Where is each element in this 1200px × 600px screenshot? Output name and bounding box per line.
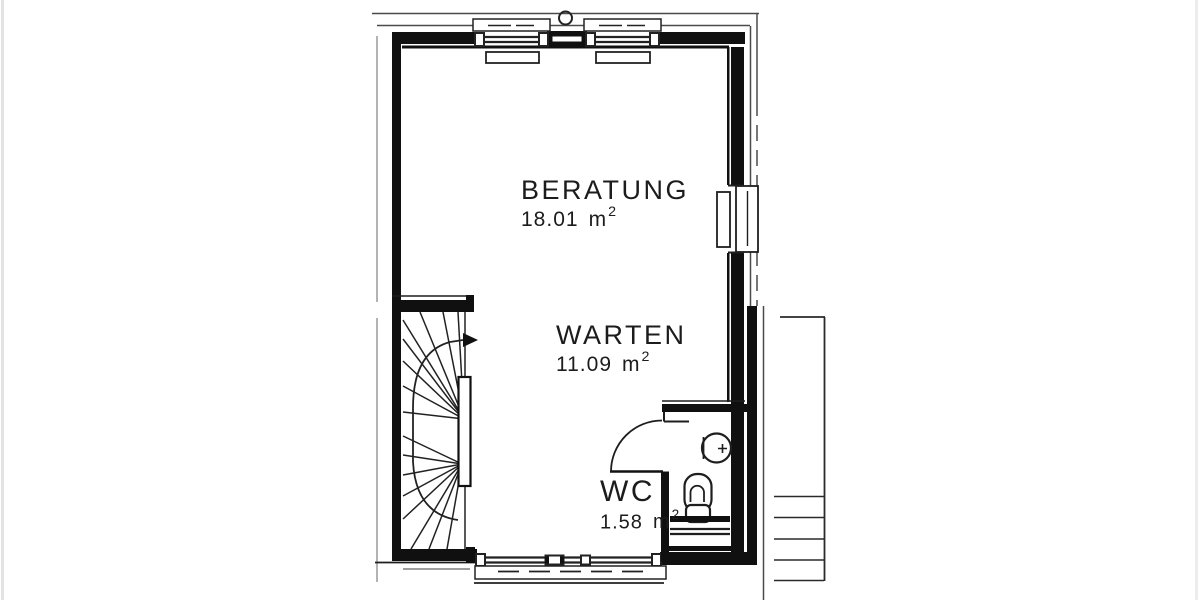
exterior-stairs-icon — [774, 317, 825, 581]
exterior-stairs-treads — [774, 497, 824, 581]
stair-run-arrow-icon — [463, 333, 478, 347]
window-icon — [485, 558, 652, 563]
entrance-door-inner-leaf — [717, 192, 730, 247]
floor-plan-page: BERATUNG 18.01m2 WARTEN 11.09m2 WC 1.58m… — [0, 0, 1200, 600]
wall-top-inner-face — [402, 46, 729, 49]
washbasin-icon — [702, 434, 731, 463]
wall-bottom-left-segment — [392, 549, 477, 561]
radiator-icon — [486, 52, 539, 63]
mullion-block-right — [560, 557, 564, 564]
room-area: 1.58m2 — [600, 510, 679, 534]
window-icon — [584, 19, 661, 63]
scan-edge-left — [1, 0, 4, 600]
window-2-jamb-left — [586, 33, 595, 46]
window-1-frame — [484, 37, 540, 42]
wall-right-inner-face-upper — [727, 47, 730, 185]
window-2-frame — [595, 37, 651, 42]
wall-bottom-right-segment — [660, 552, 754, 565]
window-2-jamb-right — [650, 33, 659, 46]
window-1-jamb-left — [475, 33, 484, 46]
wall-top-right-segment — [658, 32, 745, 44]
entrance-door-icon — [717, 186, 758, 253]
stair-treads-lower — [403, 436, 462, 549]
room-label-beratung: BERATUNG 18.01m2 — [521, 176, 689, 231]
radiator-icon — [596, 52, 650, 63]
room-name: WARTEN — [556, 321, 687, 349]
window-1-jamb-right — [539, 33, 548, 46]
wall-top-pier-slit — [553, 37, 582, 42]
bottom-window-outer-sill — [475, 566, 666, 579]
wall-right-outer-band — [747, 306, 757, 565]
room-name: WC — [600, 476, 679, 508]
stair-walk-line — [413, 340, 463, 520]
mullion-block-left — [545, 557, 549, 564]
bottom-window — [474, 554, 666, 583]
scan-edge-right — [1195, 0, 1198, 600]
wc-door-jamb — [664, 412, 689, 422]
wall-right-inner-face-lower — [727, 253, 730, 402]
wall-bottom-stub-cap — [466, 547, 475, 563]
stair-treads-upper — [403, 312, 464, 419]
door-swing-icon — [611, 421, 662, 472]
wall-right-upper — [731, 47, 744, 185]
window-2-outer-sill — [584, 19, 661, 31]
room-name: BERATUNG — [521, 176, 689, 204]
wc-top-wall — [662, 404, 747, 412]
stair-stub-wall-cap — [466, 295, 474, 312]
stair-handrail — [459, 377, 471, 486]
window-1-outer-sill — [473, 19, 550, 31]
bottom-window-mullion-2 — [581, 556, 590, 565]
bottom-window-jamb-left — [476, 554, 485, 566]
bottom-window-jamb-right — [652, 554, 661, 566]
room-label-warten: WARTEN 11.09m2 — [556, 321, 687, 376]
window-icon — [473, 19, 550, 63]
stair-stub-wall — [392, 300, 473, 312]
toilet-icon — [685, 474, 712, 522]
room-area: 18.01m2 — [521, 207, 689, 231]
room-area: 11.09m2 — [556, 352, 687, 376]
wall-top-left-segment — [392, 32, 476, 44]
room-label-wc: WC 1.58m2 — [600, 476, 679, 533]
winder-staircase-icon — [403, 312, 478, 549]
